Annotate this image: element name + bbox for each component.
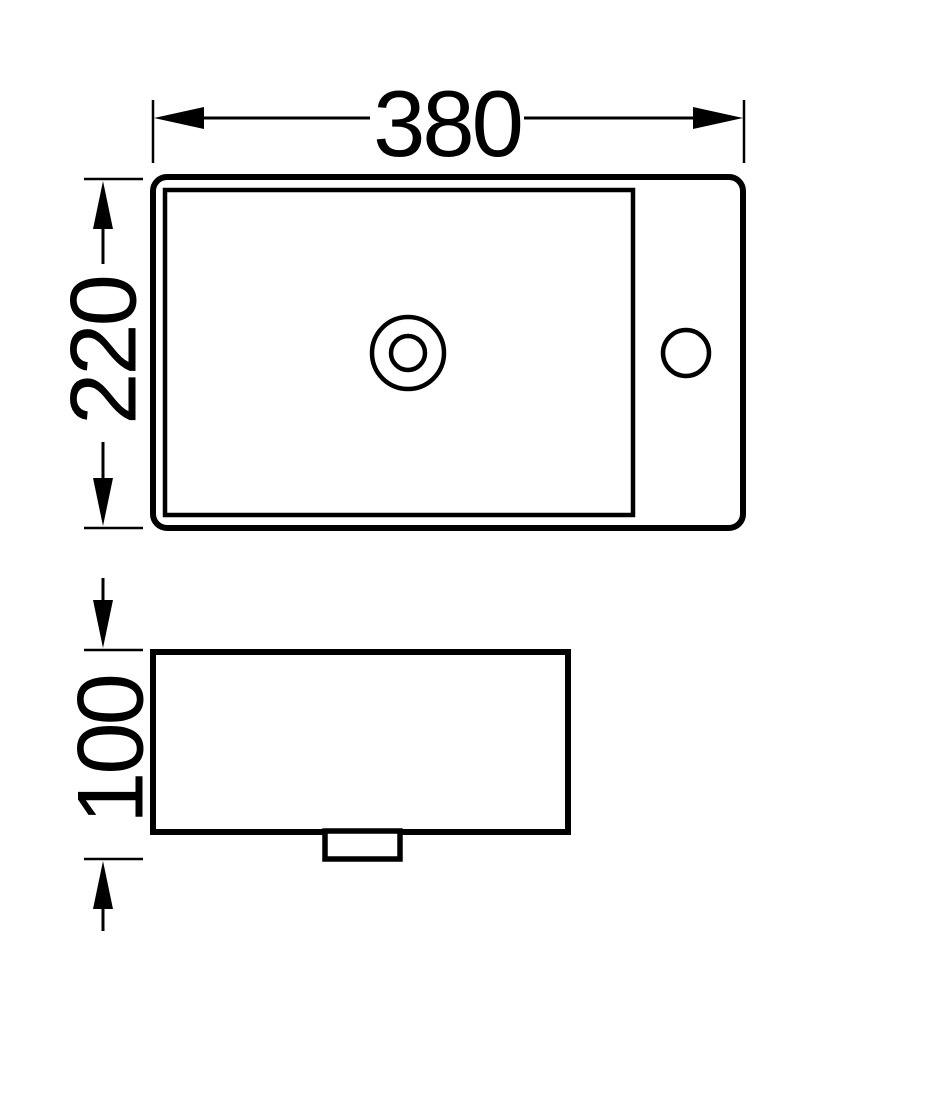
arrowhead-left-icon: [154, 107, 204, 129]
basin-side-outline: [153, 652, 568, 832]
depth-dimension-label: 220: [51, 277, 156, 425]
height-dimension-label: 100: [58, 676, 163, 824]
top-view: [153, 177, 743, 528]
arrowhead-down-icon: [93, 600, 113, 648]
technical-drawing-page: 380 220 100: [0, 0, 936, 1094]
basin-outer-outline: [153, 177, 743, 528]
arrowhead-up-icon: [93, 181, 113, 229]
width-dimension: 380: [153, 71, 744, 176]
front-view: [153, 652, 568, 859]
height-dimension: 100: [58, 578, 163, 931]
arrowhead-down-icon: [93, 478, 113, 526]
depth-dimension: 220: [51, 179, 156, 528]
arrowhead-up-icon: [93, 861, 113, 909]
technical-drawing-canvas: 380 220 100: [0, 0, 936, 1094]
drain-outlet-tab: [325, 831, 400, 859]
arrowhead-right-icon: [693, 107, 743, 129]
width-dimension-label: 380: [373, 71, 521, 176]
